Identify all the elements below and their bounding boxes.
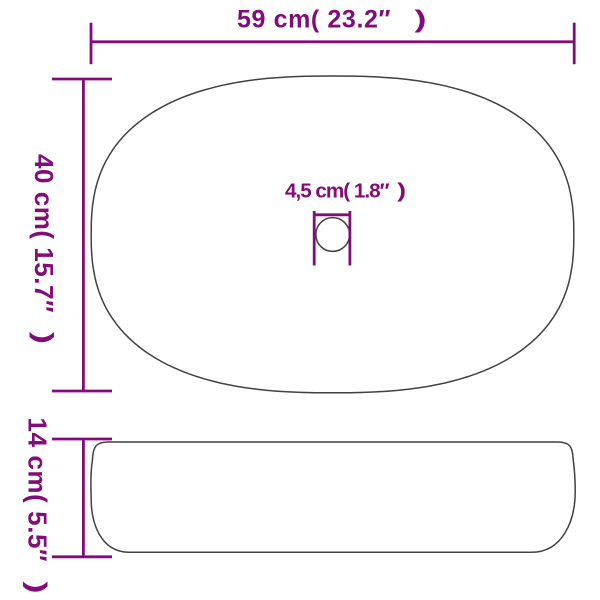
svg-text:4,5 cm( 1.8″: 4,5 cm( 1.8″: [285, 180, 390, 203]
svg-text:): ): [29, 332, 59, 344]
svg-text:): ): [415, 6, 427, 34]
svg-text:59 cm( 23.2″: 59 cm( 23.2″: [237, 6, 391, 34]
svg-text:14 cm( 5.5″: 14 cm( 5.5″: [23, 418, 53, 562]
svg-text:40 cm( 15.7″: 40 cm( 15.7″: [29, 154, 59, 313]
svg-text:): ): [23, 582, 53, 594]
svg-text:): ): [397, 180, 406, 203]
